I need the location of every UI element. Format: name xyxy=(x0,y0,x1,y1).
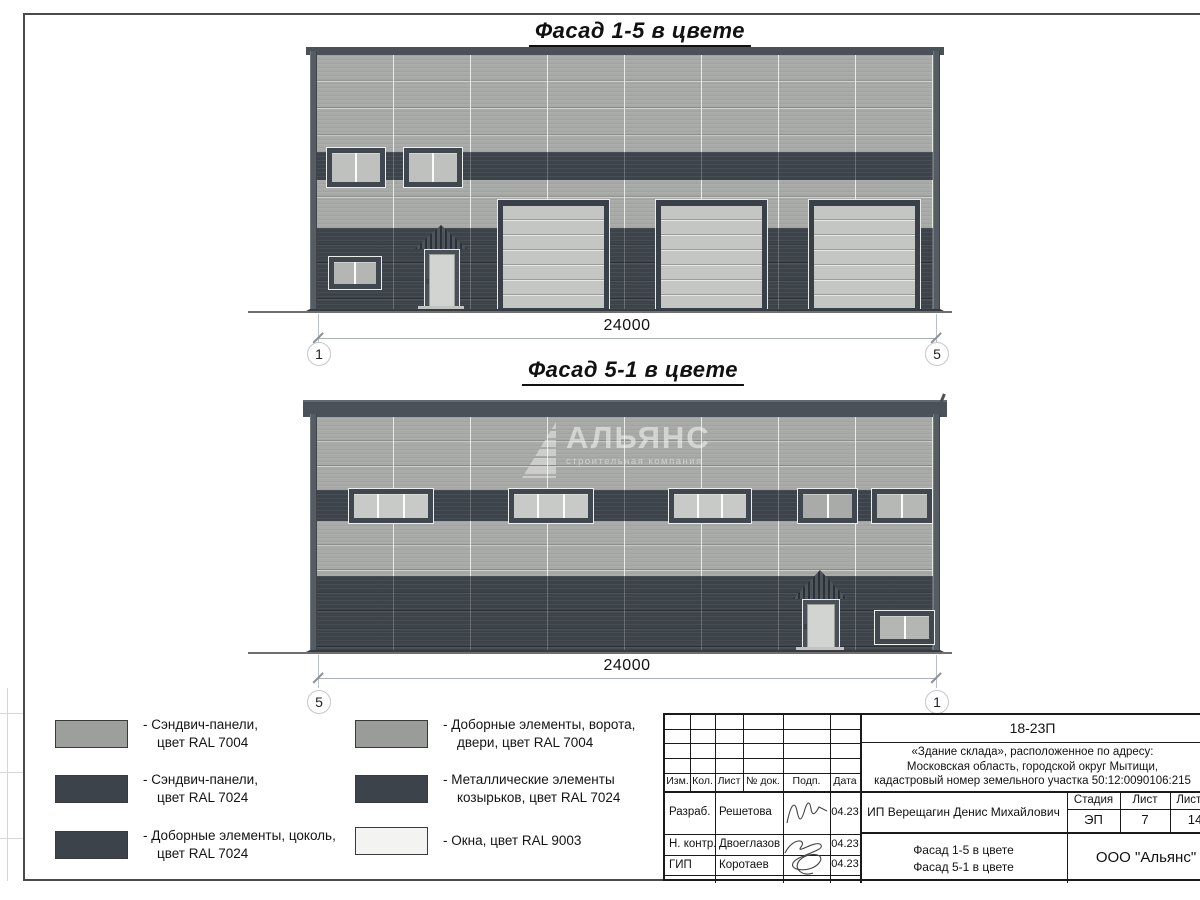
sectional-door-leaf xyxy=(661,206,762,308)
extension-line xyxy=(936,655,937,688)
sectional-door xyxy=(655,199,768,311)
window xyxy=(328,256,382,290)
wall-panels-middle xyxy=(317,521,933,576)
sectional-door xyxy=(497,199,610,311)
window xyxy=(668,488,752,524)
sectional-door-leaf xyxy=(814,206,915,308)
axis-number: 5 xyxy=(315,694,323,710)
tb-col-data: Дата xyxy=(830,773,860,791)
door-threshold xyxy=(796,647,844,650)
tb-sheets-value: 14 xyxy=(1170,809,1200,832)
tb-client: ИП Верещагин Денис Михайлович xyxy=(860,793,1067,832)
tb-project-code: 18-23П xyxy=(860,715,1200,742)
axis-number: 1 xyxy=(315,346,323,362)
tb-sheet-value: 7 xyxy=(1120,809,1170,832)
tb-sheet-title-line: Фасад 5-1 в цвете xyxy=(913,859,1014,875)
margin-mark xyxy=(0,772,23,773)
margin-mark xyxy=(7,688,8,881)
legend-swatch xyxy=(55,775,128,803)
tb-role: Разраб. xyxy=(669,791,715,834)
drawing-sheet: Фасад 1-5 в цвете xyxy=(0,0,1200,900)
tb-name: Коротаев xyxy=(719,855,783,875)
ground-line xyxy=(248,311,952,313)
tb-stage-value: ЭП xyxy=(1067,809,1120,832)
tb-col-kol: Кол. xyxy=(690,773,715,791)
window-panes xyxy=(803,494,852,518)
legend-swatch xyxy=(355,827,428,855)
legend-label: двери, цвет RAL 7004 xyxy=(443,734,635,752)
legend-label: - Доборные элементы, ворота, xyxy=(443,716,635,734)
tb-address-line: «Здание склада», расположенное по адресу… xyxy=(912,745,1154,760)
legend-label: цвет RAL 7024 xyxy=(143,845,336,863)
legend-swatch xyxy=(355,775,428,803)
facade-1-5-drawing xyxy=(310,47,940,309)
tb-sheets-label: Листов xyxy=(1170,791,1200,809)
facade-1-5-title: Фасад 1-5 в цвете xyxy=(529,18,751,47)
door-handle xyxy=(804,624,807,629)
legend-label: - Металлические элементы xyxy=(443,771,620,789)
frame-top-border xyxy=(23,13,1200,15)
axis-marker: 5 xyxy=(925,342,949,366)
tb-col-list: Лист xyxy=(715,773,743,791)
window-panes xyxy=(877,494,927,518)
legend-swatch xyxy=(55,720,128,748)
window-panes xyxy=(880,616,929,639)
facade-5-1-drawing: АЛЬЯНС строительная компания xyxy=(310,400,940,650)
window xyxy=(874,610,935,645)
tb-sheet-label: Лист xyxy=(1120,791,1170,809)
tb-stage-label: Стадия xyxy=(1067,791,1120,809)
tb-col-ndok: № док. xyxy=(743,773,783,791)
tb-address-line: Московская область, городской округ Мыти… xyxy=(907,760,1158,775)
window xyxy=(508,488,594,524)
dimension-line xyxy=(318,338,936,339)
axis-marker: 5 xyxy=(307,690,331,714)
legend-label: цвет RAL 7004 xyxy=(143,734,258,752)
signature xyxy=(777,833,837,881)
dimension-value: 24000 xyxy=(604,317,651,335)
facade-5-1-title: Фасад 5-1 в цвете xyxy=(522,357,744,386)
tb-address-line: кадастровый номер земельного участка 50:… xyxy=(874,774,1191,789)
margin-mark xyxy=(0,713,23,714)
window-panes xyxy=(332,153,380,182)
window xyxy=(348,488,434,524)
legend-swatch xyxy=(55,831,128,859)
window-panes xyxy=(354,494,428,518)
door-handle xyxy=(426,279,429,284)
tb-role: ГИП xyxy=(669,855,719,875)
sectional-door-leaf xyxy=(503,206,604,308)
tb-col-podp: Подп. xyxy=(783,773,830,791)
door-threshold xyxy=(418,306,464,309)
legend-item: - Окна, цвет RAL 9003 xyxy=(355,827,581,855)
door-leaf xyxy=(429,254,455,308)
wall-plinth-dark xyxy=(317,576,933,650)
legend-item: - Доборные элементы, цоколь,цвет RAL 702… xyxy=(55,827,336,862)
tb-role: Н. контр. xyxy=(669,834,719,855)
corner-flashing-left xyxy=(310,51,317,309)
corner-flashing-left xyxy=(310,414,317,650)
legend-label: - Сэндвич-панели, xyxy=(143,771,258,789)
ground-line xyxy=(248,652,952,654)
dimension-value: 24000 xyxy=(604,657,651,675)
legend-label: - Окна, цвет RAL 9003 xyxy=(443,832,581,850)
signature xyxy=(781,793,835,833)
extension-line xyxy=(318,655,319,688)
window xyxy=(326,147,386,188)
axis-marker: 1 xyxy=(307,342,331,366)
window xyxy=(871,488,933,524)
dimension-line xyxy=(318,678,936,679)
corner-flashing-right xyxy=(933,51,940,309)
window-panes xyxy=(514,494,588,518)
parapet-flashing xyxy=(303,400,947,417)
axis-marker: 1 xyxy=(925,690,949,714)
legend-item: - Сэндвич-панели,цвет RAL 7004 xyxy=(55,716,258,751)
legend-item: - Металлические элементыкозырьков, цвет … xyxy=(355,771,620,806)
legend-label: - Сэндвич-панели, xyxy=(143,716,258,734)
window-panes xyxy=(409,153,457,182)
legend-label: козырьков, цвет RAL 7024 xyxy=(443,789,620,807)
tb-company: ООО "Альянс" xyxy=(1067,834,1200,883)
tb-name: Двоеглазов xyxy=(719,834,783,855)
sectional-door xyxy=(808,199,921,311)
entrance-door xyxy=(424,249,460,311)
window xyxy=(797,488,858,524)
title-block: Изм. Кол. Лист № док. Подп. Дата Разраб.… xyxy=(663,713,1200,881)
legend-label: - Доборные элементы, цоколь, xyxy=(143,827,336,845)
legend-item: - Доборные элементы, ворота,двери, цвет … xyxy=(355,716,635,751)
door-leaf xyxy=(807,604,835,649)
window-panes xyxy=(674,494,746,518)
tb-col-izm: Изм. xyxy=(665,773,690,791)
window-panes xyxy=(334,262,376,284)
entrance-door xyxy=(802,599,840,652)
wall-panels-upper xyxy=(317,417,933,490)
tb-sheet-title-line: Фасад 1-5 в цвете xyxy=(913,842,1014,858)
wall-panels-upper xyxy=(317,55,933,152)
frame-left-border xyxy=(23,13,25,881)
legend-label: цвет RAL 7024 xyxy=(143,789,258,807)
tb-name: Решетова xyxy=(719,791,783,834)
window xyxy=(403,147,463,188)
axis-number: 1 xyxy=(933,694,941,710)
margin-mark xyxy=(0,838,23,839)
legend-swatch xyxy=(355,720,428,748)
roof-flashing xyxy=(306,47,944,55)
legend-item: - Сэндвич-панели,цвет RAL 7024 xyxy=(55,771,258,806)
axis-number: 5 xyxy=(933,346,941,362)
